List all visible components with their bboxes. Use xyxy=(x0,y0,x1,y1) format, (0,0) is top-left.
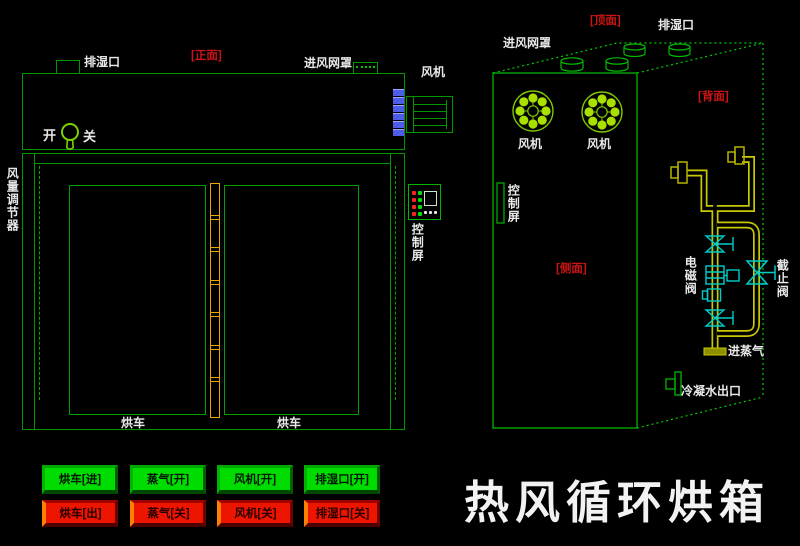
side-face-label: [侧面] xyxy=(556,263,587,276)
steam-off-button[interactable]: 蒸气[关] xyxy=(130,500,206,527)
steam-on-button[interactable]: 蒸气[开] xyxy=(130,465,206,494)
side-fan2-label: 风机 xyxy=(587,138,611,151)
cart-out-button[interactable]: 烘车[出] xyxy=(42,500,118,527)
drawing-canvas: 排湿口 [正面] 进风网罩 开 关 风量调节器 xyxy=(0,0,800,546)
side-exhaust-port-label: 排湿口 xyxy=(658,19,694,32)
fan-on-button[interactable]: 风机[开] xyxy=(217,465,293,494)
cart-in-button[interactable]: 烘车[进] xyxy=(42,465,118,494)
condensate-outlet-icon xyxy=(666,372,681,395)
side-inlet-mesh-label: 进风网罩 xyxy=(503,37,551,50)
fan-impeller-icon xyxy=(582,92,622,132)
solenoid-valve-icon xyxy=(703,266,740,301)
back-face-label: [背面] xyxy=(698,91,729,104)
angle-valve-icon xyxy=(706,236,733,252)
side-control-screen xyxy=(497,183,504,223)
steam-inlet-label: 进蒸气 xyxy=(728,345,764,358)
stop-valve-label: 截止阀 xyxy=(775,259,788,298)
perspective-view-diagram xyxy=(0,0,800,546)
solenoid-valve-label: 电磁阀 xyxy=(683,256,696,295)
steam-piping xyxy=(687,160,757,352)
steam-inlet-flange xyxy=(704,348,726,355)
stop-valve-icon xyxy=(747,261,775,284)
angle-valve-icon xyxy=(706,310,733,326)
side-fan1-label: 风机 xyxy=(518,138,542,151)
exhaust-close-button[interactable]: 排湿口[关] xyxy=(304,500,380,527)
exhaust-open-button[interactable]: 排湿口[开] xyxy=(304,465,380,494)
vent-cylinders xyxy=(561,44,690,71)
top-face-label: [顶面] xyxy=(590,15,621,28)
condensate-outlet-label: 冷凝水出口 xyxy=(681,385,741,398)
fan-off-button[interactable]: 风机[关] xyxy=(217,500,293,527)
fan-impeller-icon xyxy=(513,91,553,131)
side-control-screen-label: 控制屏 xyxy=(506,184,519,223)
drawing-title: 热风循环烘箱 xyxy=(464,466,770,531)
